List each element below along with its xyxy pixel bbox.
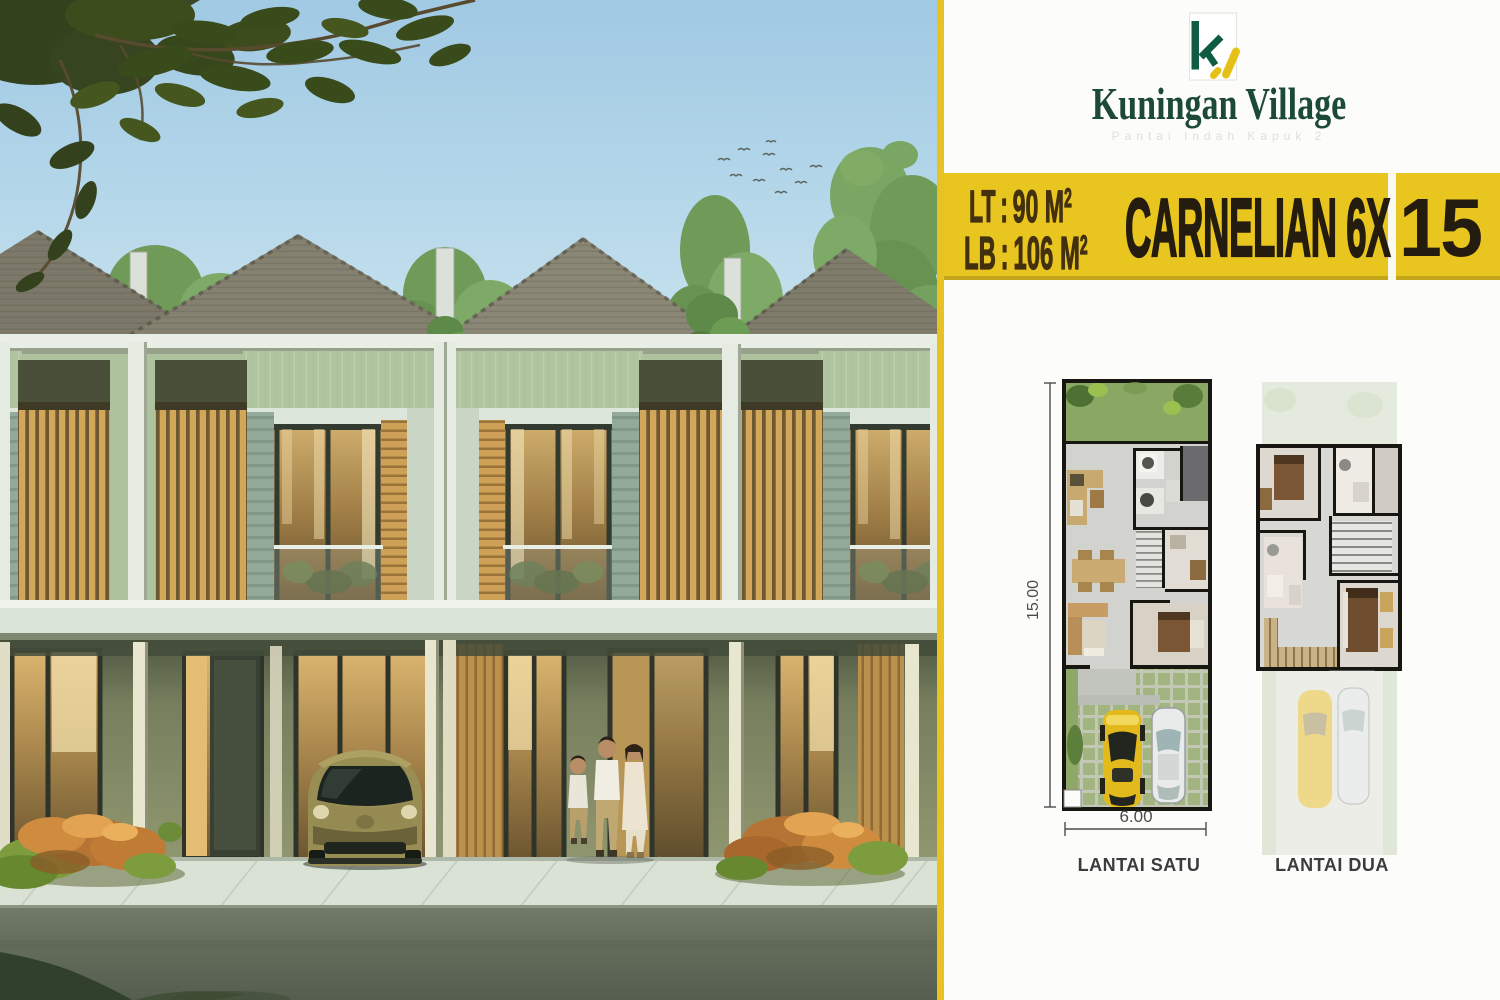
svg-text:15.00: 15.00 xyxy=(1025,580,1042,620)
svg-text:6.00: 6.00 xyxy=(1119,807,1152,826)
